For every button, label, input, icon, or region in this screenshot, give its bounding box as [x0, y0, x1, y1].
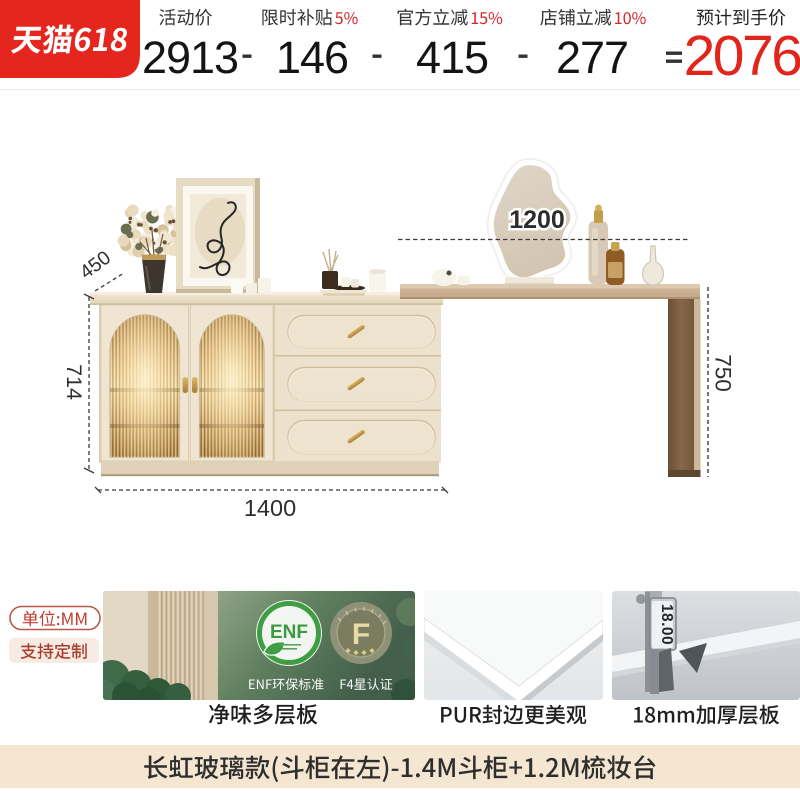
svg-text:2076: 2076: [684, 24, 800, 88]
svg-text:ENF: ENF: [270, 622, 308, 643]
svg-text:F: F: [352, 618, 370, 651]
svg-text:750: 750: [711, 354, 736, 392]
svg-text:146: 146: [276, 32, 348, 83]
svg-text:2913: 2913: [142, 32, 238, 83]
svg-text:1400: 1400: [244, 495, 296, 521]
svg-text:450: 450: [76, 247, 115, 284]
svg-text:714: 714: [62, 364, 86, 400]
svg-text:415: 415: [416, 32, 488, 83]
svg-text:18.00: 18.00: [658, 604, 675, 645]
svg-text:1200: 1200: [509, 206, 565, 234]
svg-text:277: 277: [556, 32, 628, 83]
